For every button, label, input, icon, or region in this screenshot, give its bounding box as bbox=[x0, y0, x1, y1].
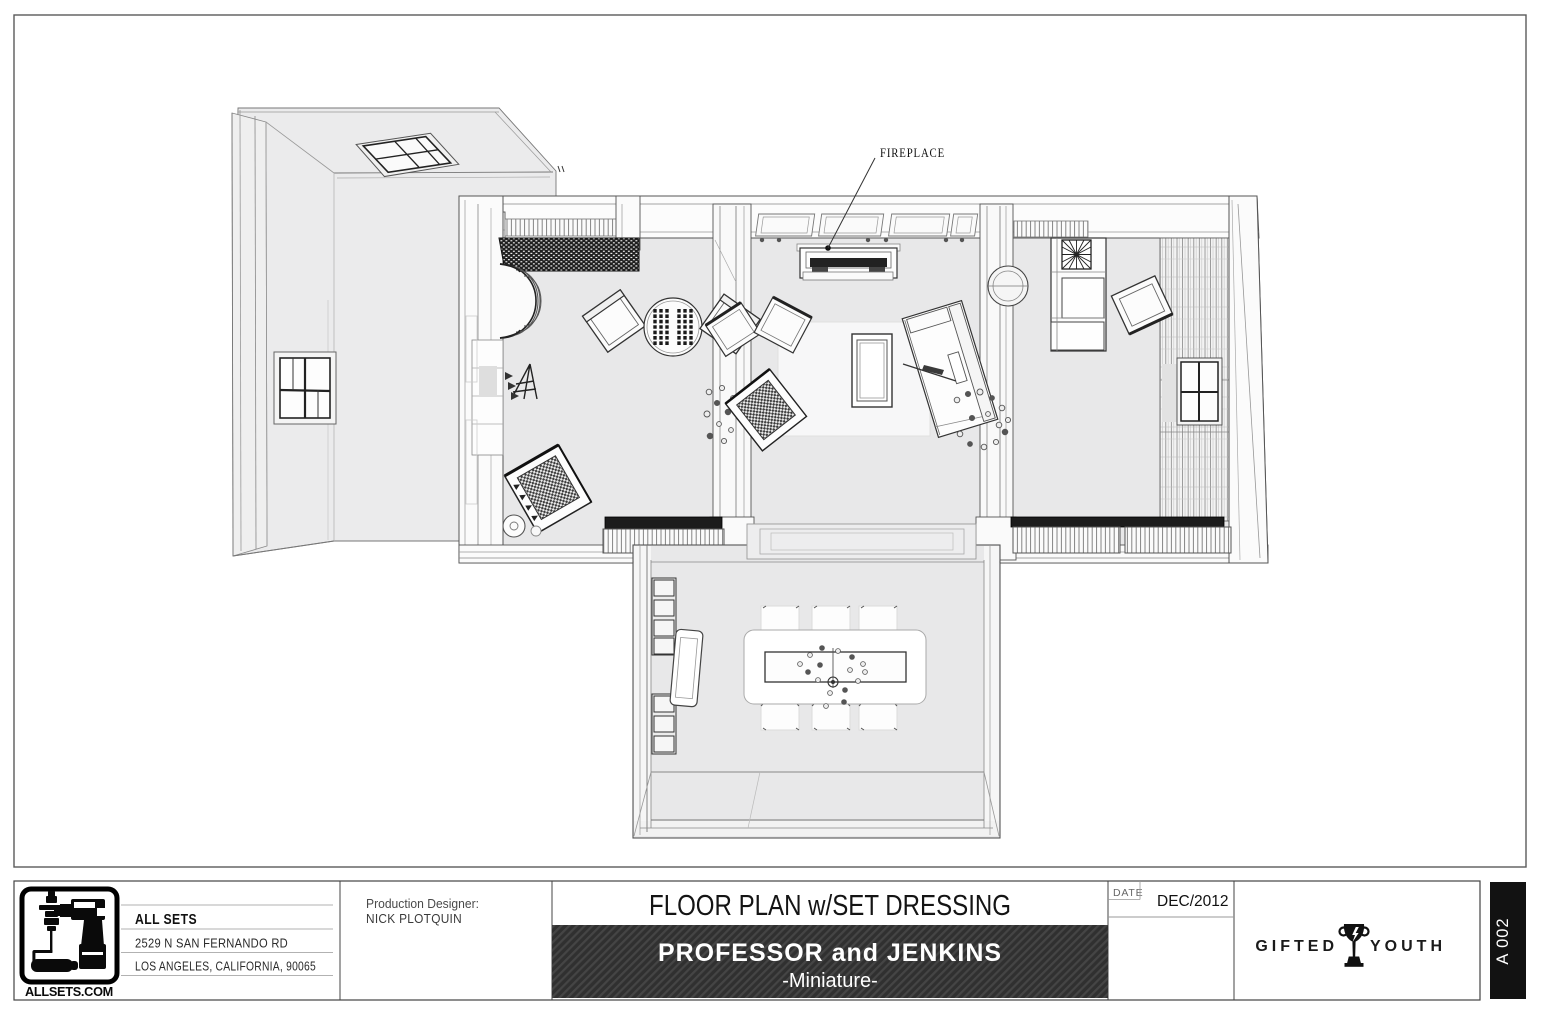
svg-text:FIREPLACE: FIREPLACE bbox=[880, 145, 945, 160]
svg-text:YOUTH: YOUTH bbox=[1370, 938, 1446, 955]
svg-text:ALL SETS: ALL SETS bbox=[135, 911, 197, 928]
svg-text:FLOOR PLAN w/SET DRESSING: FLOOR PLAN w/SET DRESSING bbox=[649, 890, 1011, 922]
svg-text:Production Designer:: Production Designer: bbox=[366, 897, 479, 911]
svg-text:LOS ANGELES, CALIFORNIA, 90065: LOS ANGELES, CALIFORNIA, 90065 bbox=[135, 960, 316, 974]
svg-text:PROFESSOR and JENKINS: PROFESSOR and JENKINS bbox=[658, 939, 1002, 967]
svg-text:NICK PLOTQUIN: NICK PLOTQUIN bbox=[366, 912, 462, 926]
svg-text:A 002: A 002 bbox=[1494, 917, 1512, 964]
svg-text:DATE: DATE bbox=[1113, 887, 1143, 899]
svg-text:-Miniature-: -Miniature- bbox=[782, 970, 878, 992]
svg-text:GIFTED: GIFTED bbox=[1255, 938, 1338, 955]
svg-text:2529 N SAN FERNANDO RD: 2529 N SAN FERNANDO RD bbox=[135, 937, 288, 951]
svg-text:ALLSETS.COM: ALLSETS.COM bbox=[25, 984, 113, 999]
svg-text:DEC/2012: DEC/2012 bbox=[1157, 893, 1229, 910]
